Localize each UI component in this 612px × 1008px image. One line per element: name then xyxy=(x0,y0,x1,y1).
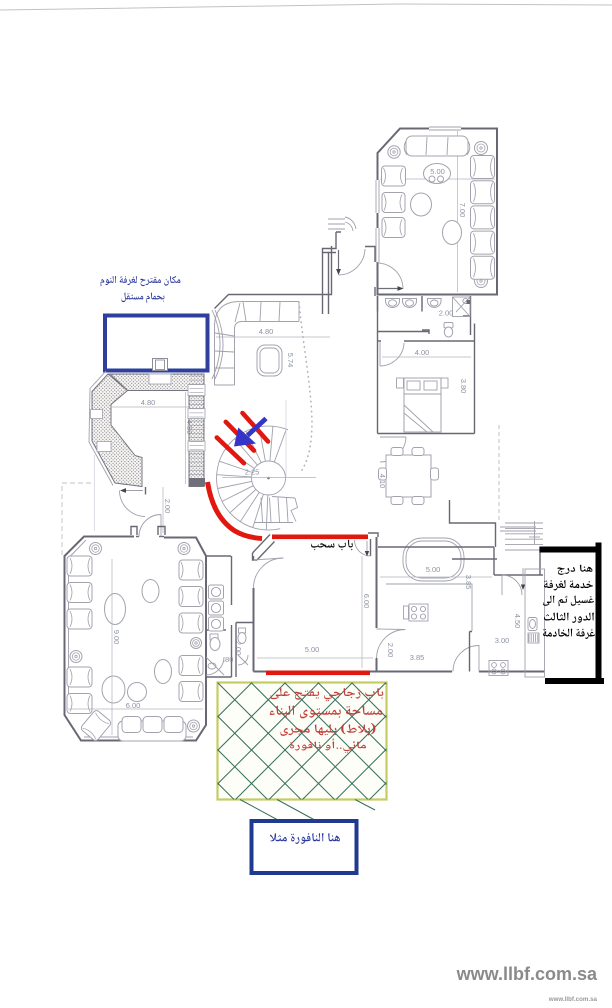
svg-text:5.00: 5.00 xyxy=(430,167,445,176)
svg-text:4.50: 4.50 xyxy=(513,614,522,629)
svg-text:4.80: 4.80 xyxy=(259,327,274,336)
svg-text:2.25: 2.25 xyxy=(245,468,260,477)
svg-text:3.85: 3.85 xyxy=(464,575,473,590)
svg-text:5.00: 5.00 xyxy=(305,645,320,654)
svg-text:7.00: 7.00 xyxy=(458,203,467,218)
svg-text:3.85: 3.85 xyxy=(410,653,425,662)
svg-text:4.10: 4.10 xyxy=(378,474,387,489)
svg-text:6.00: 6.00 xyxy=(362,594,371,609)
svg-text:2.00: 2.00 xyxy=(163,499,172,514)
svg-text:9.00: 9.00 xyxy=(112,630,121,645)
svg-text:3.00: 3.00 xyxy=(495,636,510,645)
svg-text:3.80: 3.80 xyxy=(459,379,468,394)
svg-text:4.80: 4.80 xyxy=(141,398,156,407)
svg-text:4.00: 4.00 xyxy=(415,348,430,357)
svg-text:4.80: 4.80 xyxy=(185,420,194,435)
svg-text:5.74: 5.74 xyxy=(286,353,295,368)
svg-text:www.llbf.com.sa: www.llbf.com.sa xyxy=(456,964,598,984)
svg-text:2.00: 2.00 xyxy=(439,309,454,318)
svg-text:2.00: 2.00 xyxy=(386,643,395,658)
svg-text:،80: ،80 xyxy=(223,655,234,664)
svg-text:6.00: 6.00 xyxy=(126,701,141,710)
svg-text:5.00: 5.00 xyxy=(426,565,441,574)
svg-text:www.llbf.com.sa: www.llbf.com.sa xyxy=(548,996,598,1003)
